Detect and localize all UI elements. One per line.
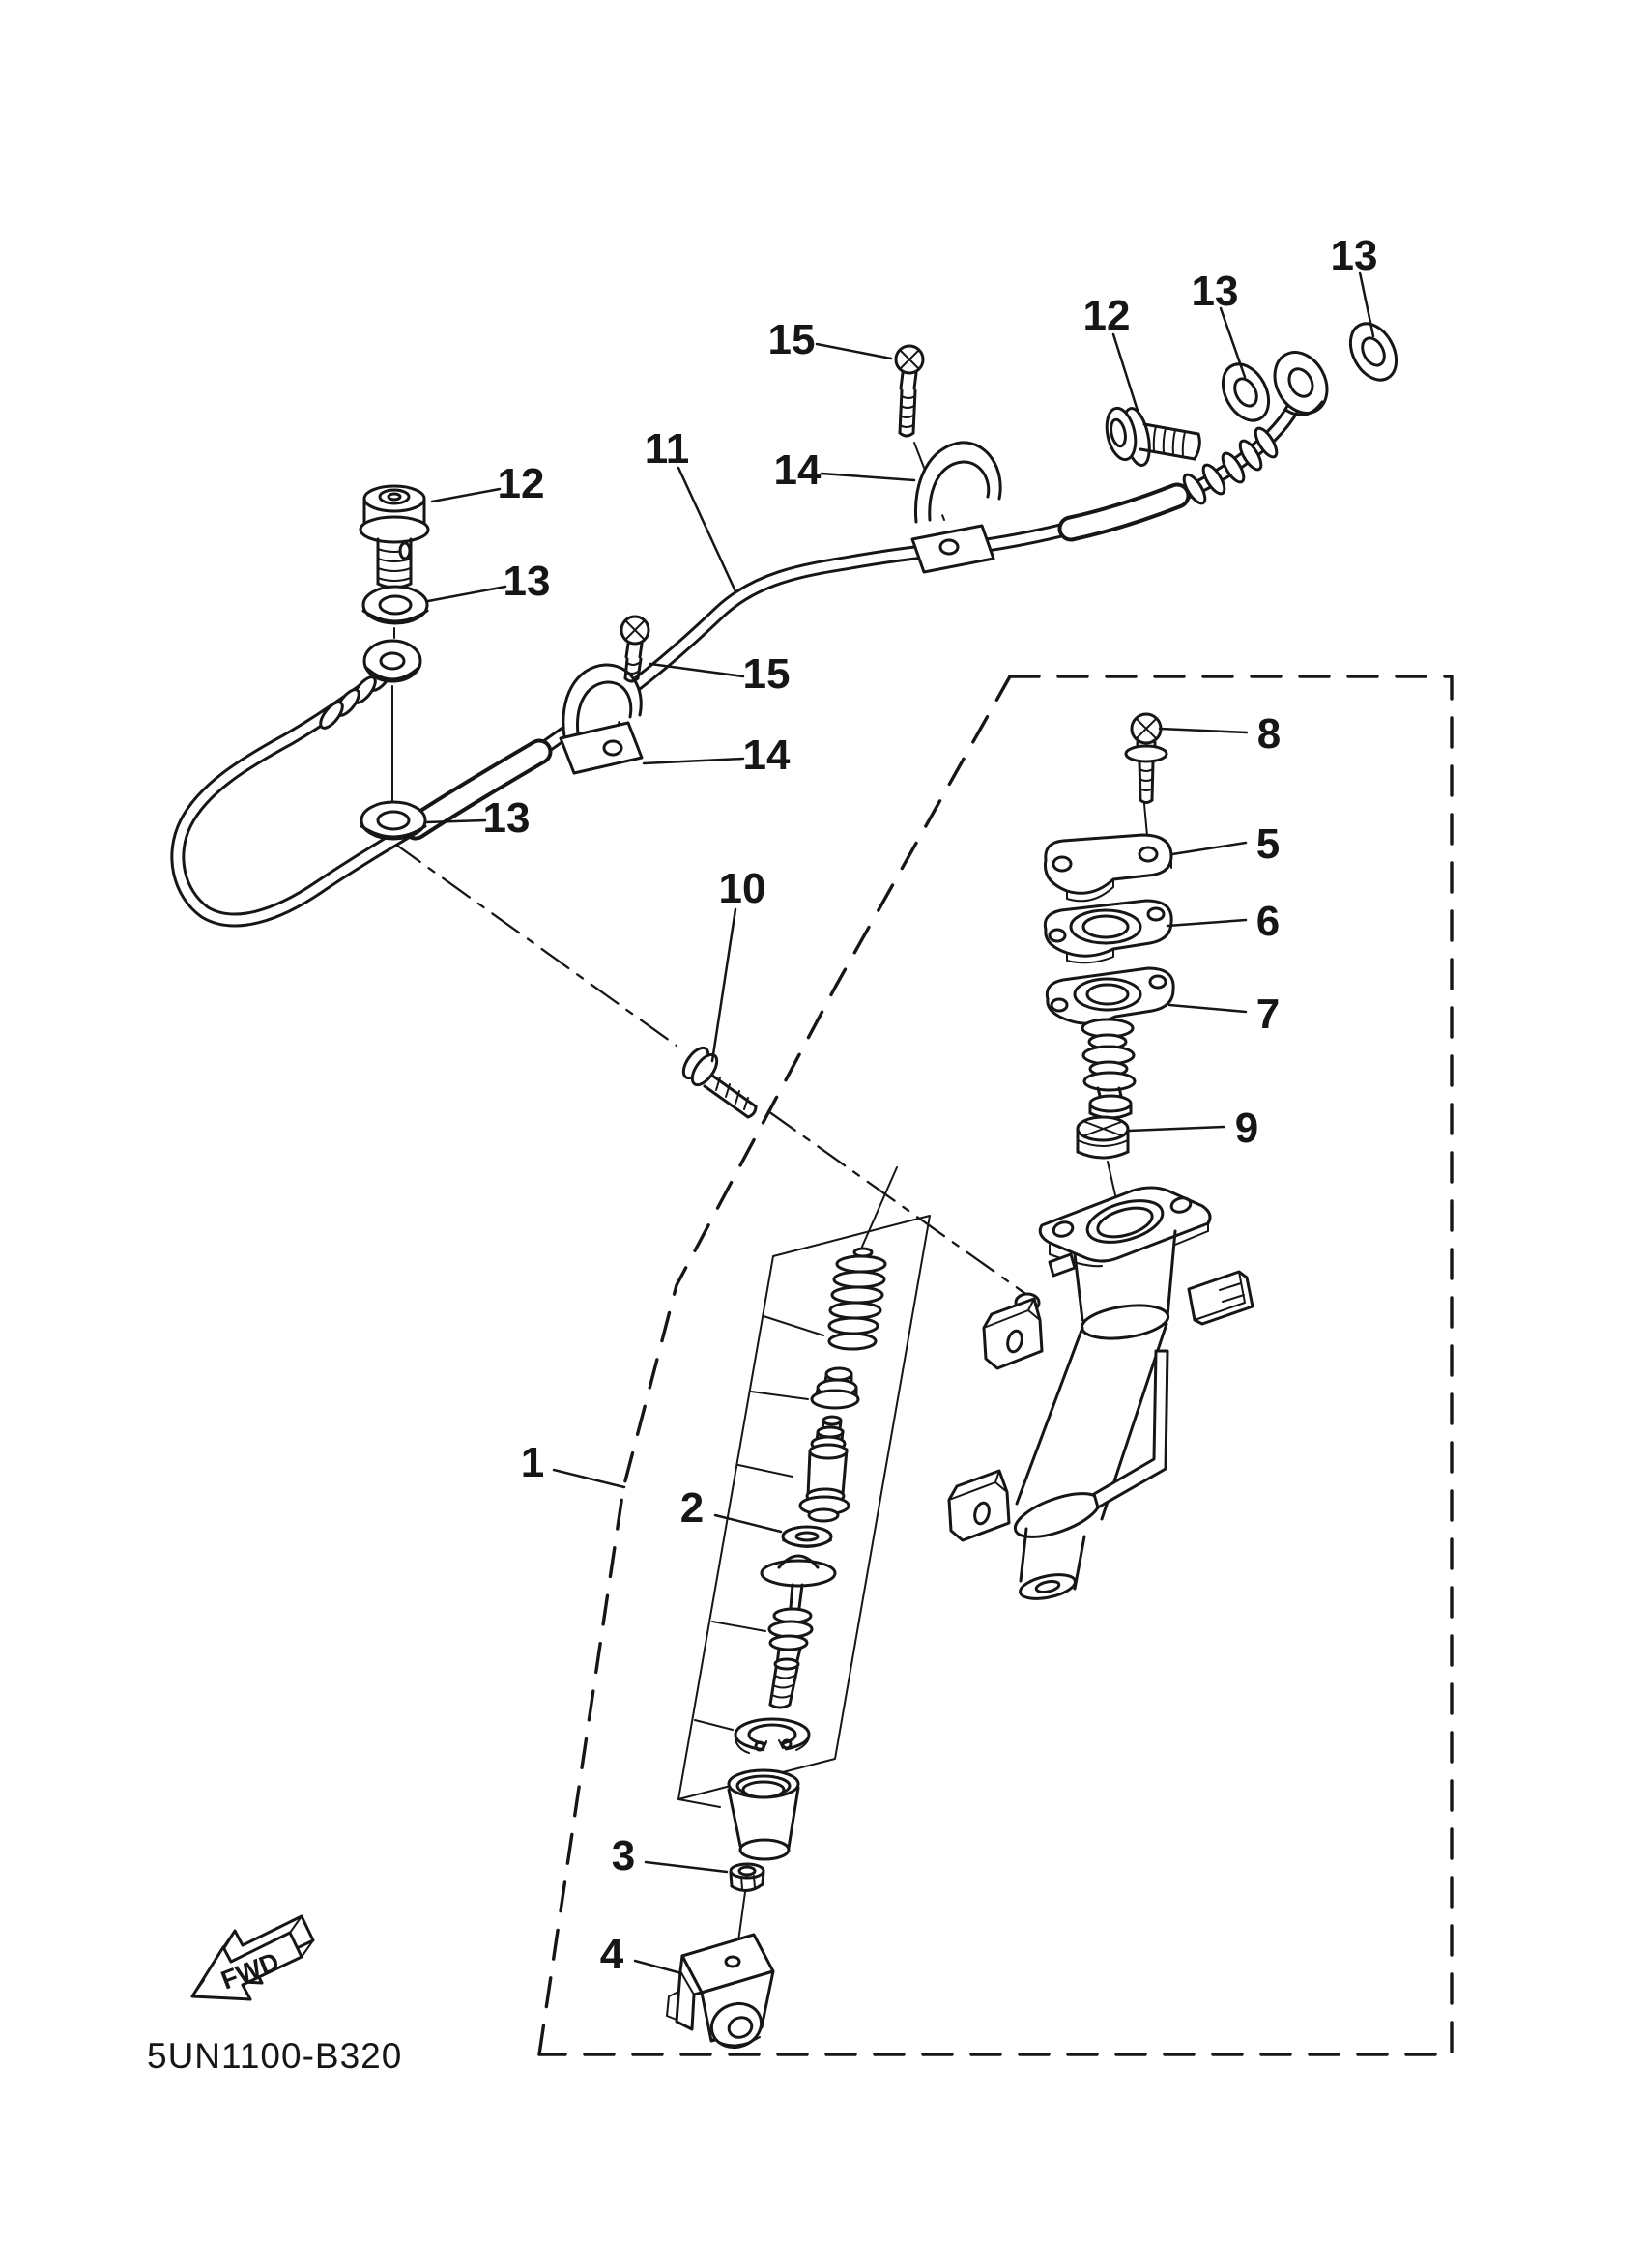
callout-5: 5 xyxy=(1256,820,1280,868)
callout-4: 4 xyxy=(600,1931,624,1978)
callout-13-top-right: 13 xyxy=(1331,232,1378,279)
reservoir-screw-8 xyxy=(1126,714,1167,803)
callout-2: 2 xyxy=(680,1484,704,1532)
piston xyxy=(800,1417,849,1521)
reservoir-cover-5 xyxy=(1045,835,1171,901)
circlip xyxy=(735,1719,809,1753)
callout-15-mid: 15 xyxy=(743,650,791,698)
callout-15-top: 15 xyxy=(768,316,816,363)
callout-13-left-upper: 13 xyxy=(504,558,551,605)
hose-banjo-eye-right xyxy=(1264,343,1337,422)
mounting-screw-10 xyxy=(678,1044,756,1117)
banjo-bolt-top xyxy=(1103,406,1200,468)
reservoir-float-7 xyxy=(1047,968,1173,1118)
callout-7: 7 xyxy=(1256,990,1280,1038)
callout-8: 8 xyxy=(1257,710,1281,758)
banjo-bolt-left xyxy=(360,486,428,588)
callout-13-left-lower: 13 xyxy=(483,794,531,842)
piston-cup xyxy=(812,1368,858,1408)
washer-left-lower xyxy=(361,802,425,839)
clamp-screw-top xyxy=(896,346,923,436)
washer-2 xyxy=(783,1527,831,1547)
hose-sleeve-upper xyxy=(1071,496,1177,529)
reservoir-seal-9 xyxy=(1078,1117,1128,1158)
washer-left-upper xyxy=(363,587,427,623)
callout-12-top: 12 xyxy=(1083,292,1131,339)
fwd-arrow: FWD xyxy=(192,1916,313,1999)
boot xyxy=(729,1770,798,1859)
callout-14-mid: 14 xyxy=(743,732,791,779)
hose-banjo-eye-left xyxy=(364,641,420,681)
diaphragm-plate-6 xyxy=(1045,901,1171,962)
callout-leaders xyxy=(425,273,1373,1973)
brake-hose xyxy=(178,343,1338,920)
locknut-3 xyxy=(731,1864,764,1891)
callout-10: 10 xyxy=(719,865,766,912)
washer-top-mid xyxy=(1214,357,1278,428)
hose-coil-right xyxy=(1180,425,1281,506)
callout-3: 3 xyxy=(612,1832,635,1880)
callout-14-top: 14 xyxy=(774,446,821,494)
clevis-4 xyxy=(667,1935,773,2054)
callout-1: 1 xyxy=(521,1439,544,1486)
callout-12-left: 12 xyxy=(498,460,545,507)
drawing-code: 5UN1100-B320 xyxy=(147,2036,402,2076)
page: FWD 5UN1100-B320 1 2 3 4 5 6 7 8 9 xyxy=(0,0,1643,2268)
piston-spring xyxy=(829,1249,885,1349)
callout-11: 11 xyxy=(645,425,690,473)
float-bellows xyxy=(1082,1019,1135,1118)
diaphragm-dome xyxy=(762,1556,835,1608)
callout-6: 6 xyxy=(1256,898,1280,945)
washer-top-right xyxy=(1341,316,1405,388)
pushrod xyxy=(769,1609,812,1708)
master-cylinder-body xyxy=(949,1188,1253,1603)
callout-9: 9 xyxy=(1235,1105,1258,1152)
hose-clamp-top xyxy=(912,443,1000,572)
callout-13-top-mid: 13 xyxy=(1192,268,1239,315)
parts-diagram-svg: FWD 5UN1100-B320 1 2 3 4 5 6 7 8 9 xyxy=(0,0,1643,2268)
